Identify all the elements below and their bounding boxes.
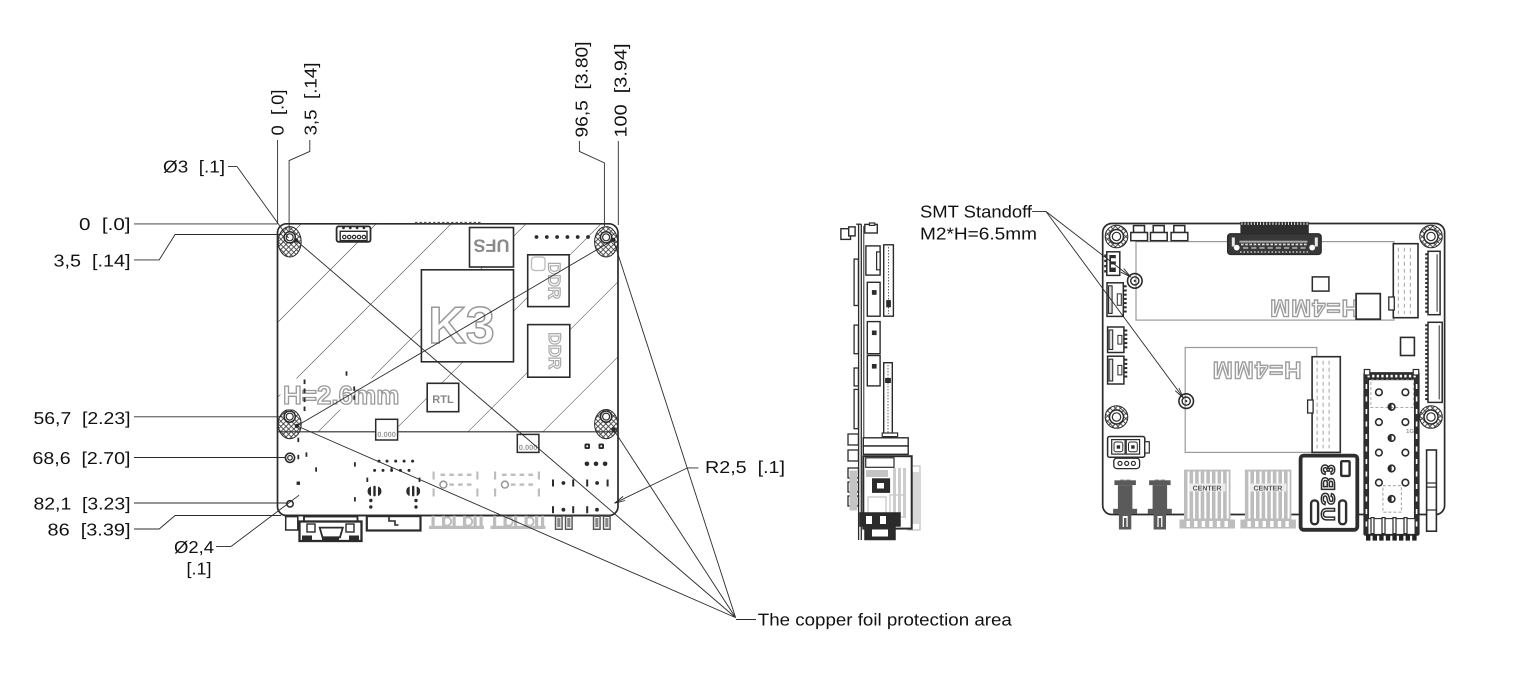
svg-text:3,5 [.14]: 3,5 [.14]: [301, 63, 321, 136]
svg-text:[.1]: [.1]: [187, 559, 212, 579]
svg-text:0.000: 0.000: [377, 430, 396, 439]
svg-text:0.000: 0.000: [519, 443, 538, 452]
svg-text:1G: 1G: [1406, 428, 1414, 435]
svg-text:CENTER: CENTER: [1254, 485, 1283, 492]
svg-text:M2*H=6.5mm: M2*H=6.5mm: [920, 223, 1037, 243]
svg-text:100 [3.94]: 100 [3.94]: [610, 44, 630, 138]
svg-text:K3: K3: [428, 297, 494, 355]
svg-text:DDR: DDR: [545, 262, 564, 299]
svg-text:DDR: DDR: [545, 332, 564, 369]
svg-text:H=4MM: H=4MM: [1212, 356, 1302, 383]
svg-text:96,5 [3.80]: 96,5 [3.80]: [571, 41, 591, 137]
svg-text:Ø3 [.1]: Ø3 [.1]: [163, 157, 225, 177]
svg-text:SMT Standoff: SMT Standoff: [920, 202, 1032, 222]
svg-text:0 [.0]: 0 [.0]: [79, 214, 131, 234]
svg-text:H=4MM: H=4MM: [1269, 294, 1359, 321]
svg-text:82,1 [3.23]: 82,1 [3.23]: [34, 493, 131, 513]
svg-text:68,6 [2.70]: 68,6 [2.70]: [33, 448, 131, 468]
svg-text:RTL: RTL: [432, 394, 454, 406]
svg-text:UFS: UFS: [474, 236, 510, 256]
svg-text:3,5 [.14]: 3,5 [.14]: [54, 251, 131, 271]
svg-text:USB3: USB3: [1317, 462, 1338, 521]
svg-text:The copper foil protection are: The copper foil protection area: [758, 610, 1012, 630]
svg-text:R2,5 [.1]: R2,5 [.1]: [705, 457, 785, 477]
svg-text:0 [.0]: 0 [.0]: [268, 90, 288, 136]
svg-text:H=2.6mm: H=2.6mm: [283, 380, 399, 410]
svg-text:56,7 [2.23]: 56,7 [2.23]: [34, 408, 131, 428]
svg-text:86 [3.39]: 86 [3.39]: [48, 519, 131, 539]
svg-text:CENTER: CENTER: [1193, 485, 1222, 492]
svg-text:Ø2,4: Ø2,4: [174, 537, 214, 557]
